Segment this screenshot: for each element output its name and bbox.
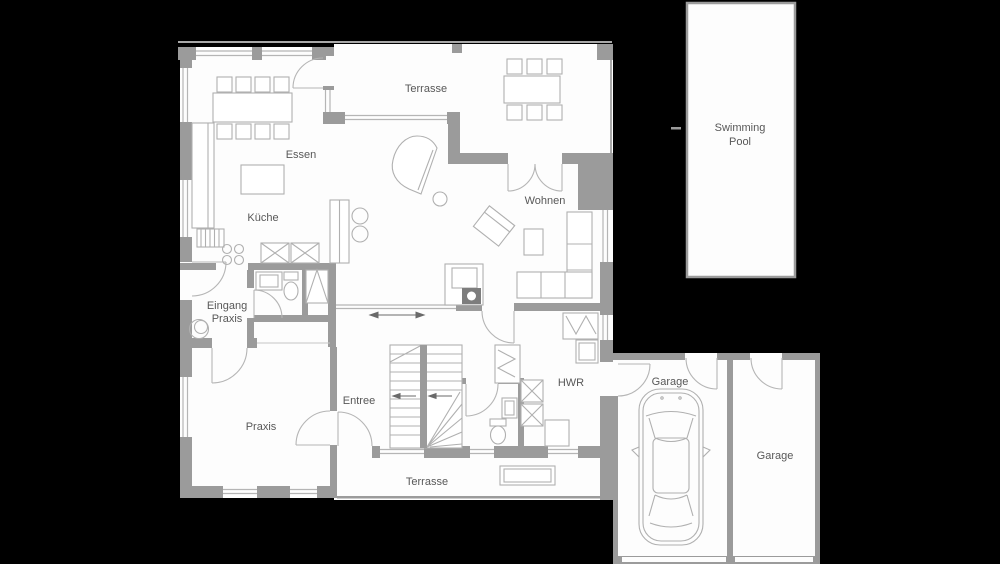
coffee-table xyxy=(524,229,543,255)
toilet-tank xyxy=(490,419,506,426)
toilet xyxy=(284,282,298,300)
kitchen-island xyxy=(241,165,284,194)
label-kueche: Küche xyxy=(247,212,278,224)
pool-inlet-mark xyxy=(671,127,681,130)
kitchen-tall-unit xyxy=(330,200,349,263)
kitchen-counter-left xyxy=(192,123,214,228)
label-swimming-pool-line1: Swimming xyxy=(715,122,766,134)
label-essen: Essen xyxy=(286,149,317,161)
label-eingang-praxis-line1: Eingang xyxy=(207,300,247,312)
hwr-counter xyxy=(545,420,569,446)
terrace-table xyxy=(504,76,560,103)
label-eingang-praxis-line2: Praxis xyxy=(212,313,243,325)
label-praxis: Praxis xyxy=(246,421,277,433)
closet-shower xyxy=(306,270,328,303)
terrace-table-group xyxy=(504,59,562,120)
staircase xyxy=(390,345,462,448)
label-terrasse-top: Terrasse xyxy=(405,83,447,95)
label-entree: Entree xyxy=(343,395,375,407)
label-garage-right: Garage xyxy=(757,450,794,462)
coat-wardrobe xyxy=(495,345,520,383)
toilet xyxy=(491,426,506,444)
label-swimming-pool-line2: Pool xyxy=(729,136,751,148)
floor-plan-svg: Terrasse Essen Küche Wohnen Eingang Prax… xyxy=(0,0,1000,564)
label-garage-left: Garage xyxy=(652,376,689,388)
floor-plan-page: Terrasse Essen Küche Wohnen Eingang Prax… xyxy=(0,0,1000,564)
hwr-wardrobe xyxy=(563,313,598,339)
label-terrasse-bottom: Terrasse xyxy=(406,476,448,488)
hwr-appliance xyxy=(576,340,598,363)
toilet-tank xyxy=(284,272,298,280)
label-wohnen: Wohnen xyxy=(525,195,566,207)
garage-doors xyxy=(622,557,813,562)
terrace-planter xyxy=(500,466,555,485)
dining-table xyxy=(213,93,292,122)
label-hwr: HWR xyxy=(558,377,584,389)
piano-stool xyxy=(433,192,447,206)
radiator xyxy=(197,229,224,247)
fireplace xyxy=(445,264,483,305)
